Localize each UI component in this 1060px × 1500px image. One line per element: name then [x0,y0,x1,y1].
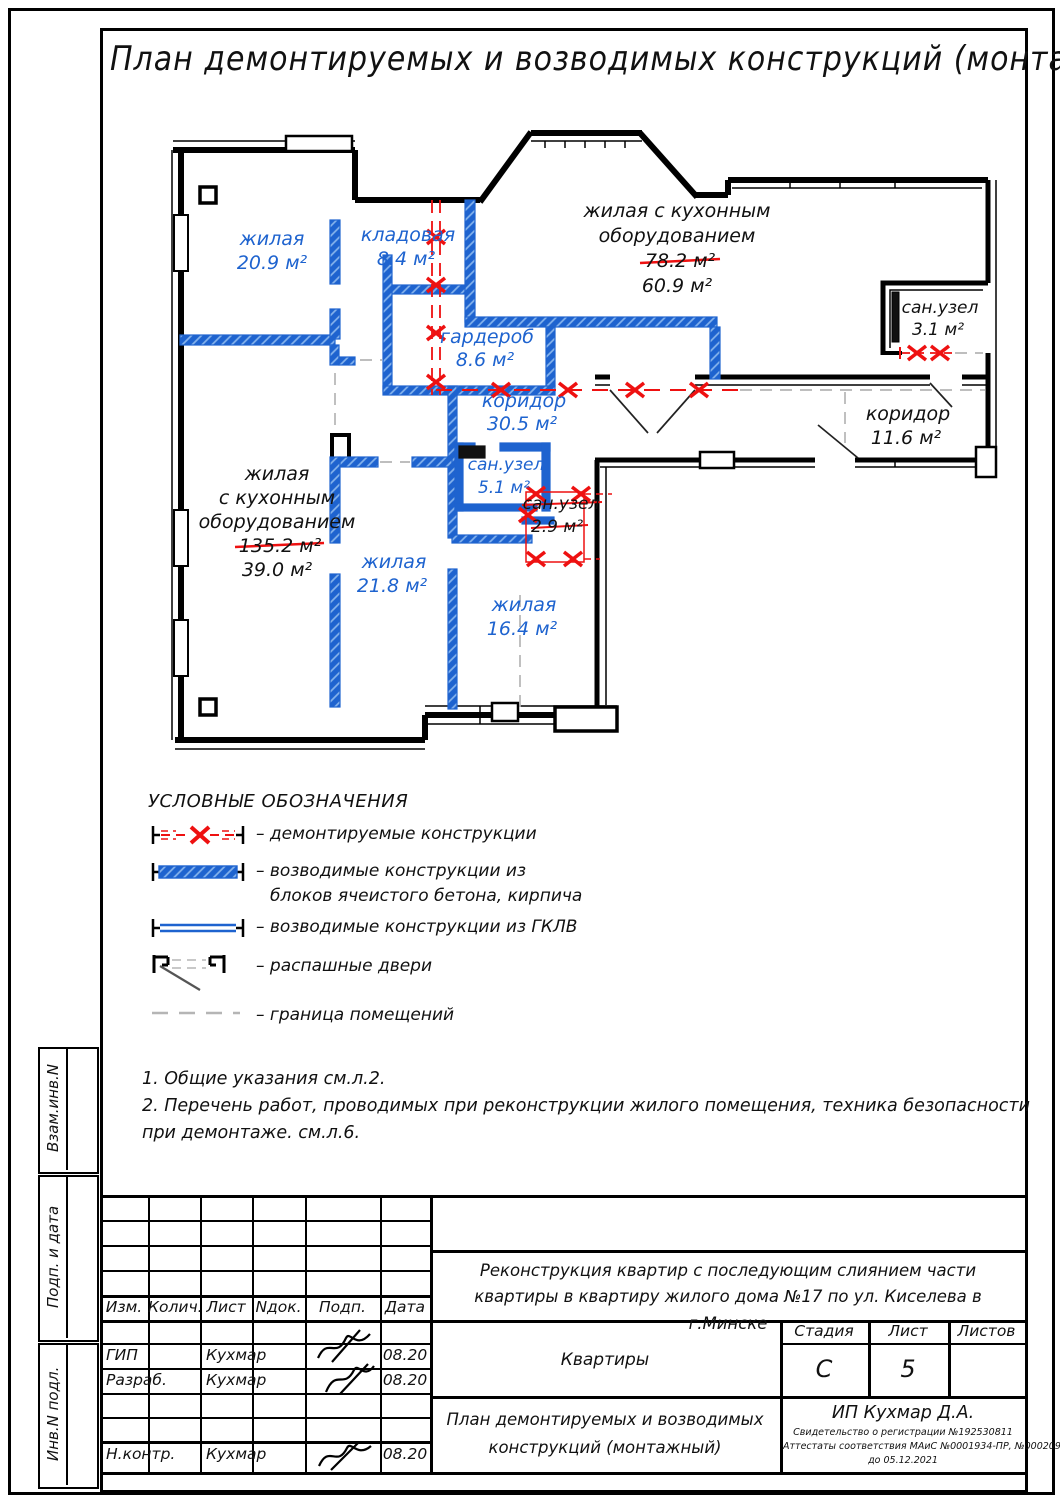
stage-label: Стадия [780,1322,868,1340]
legend-label-gklv: – возводимые конструкции из ГКЛВ [256,915,577,940]
col-podp: Подп. [305,1298,380,1316]
date-gip: 08.20 [380,1346,430,1364]
room-sanuzel-29-name: сан.узел [523,494,600,514]
sidebar-label-podp: Подп. и дата [40,1177,66,1336]
date-razrab: 08.20 [380,1371,430,1389]
legend-heading: УСЛОВНЫЕ ОБОЗНАЧЕНИЯ [148,791,648,812]
room-kitchen-top-new-area: 60.9 м² [642,275,713,297]
legend-item-boundary: – граница помещений [148,1003,648,1028]
role-nkontr: Н.контр. [106,1445,175,1463]
name-gip: Кухмар [206,1346,266,1364]
object-name: Квартиры [430,1350,780,1370]
room-kitchen-left-new-area: 39.0 м² [242,559,313,581]
floor-plan: жилая 20.9 м² кладовая 8.4 м² жилая с ку… [140,95,1025,785]
legend-label-blocks-2: блоков ячеистого бетона, кирпича [256,884,582,909]
legend-label-demolished: – демонтируемые конструкции [256,822,537,847]
date-nkontr: 08.20 [380,1445,430,1463]
swing-door-symbol [148,952,256,996]
erected-blocks-wall-symbol [148,859,256,889]
room-zhilaya-218-name: жилая [361,551,427,573]
drawing-sheet: План демонтируемых и возводимых конструк… [0,0,1060,1500]
room-koridor-116-area: 11.6 м² [871,427,942,449]
room-zhilaya-164-name: жилая [491,594,557,616]
room-sanuzel-31-area: 3.1 м² [912,320,964,340]
sidebar-label-inv: Инв.N подл. [40,1345,66,1483]
company-cert-3: до 05.12.2021 [783,1455,1023,1466]
sidebar-label-vzam: Взам.инв.N [40,1049,66,1168]
room-kitchen-left-l1: жилая [244,463,310,485]
sheets-label: Листов [948,1322,1025,1340]
room-koridor-305-area: 30.5 м² [487,413,558,435]
legend-item-demolished: – демонтируемые конструкции [148,822,648,852]
room-zhilaya-218-area: 21.8 м² [357,575,428,597]
name-razrab: Кухмар [206,1371,266,1389]
room-koridor-305-name: коридор [482,390,566,412]
room-kladovaya-area: 8.4 м² [377,248,436,270]
name-nkontr: Кухмар [206,1445,266,1463]
sheet-value: 5 [868,1355,948,1383]
room-kitchen-top-l1: жилая с кухонным [583,200,771,222]
sheet-title: План демонтируемых и возводимых конструк… [110,40,1015,79]
drawing-title-1: План демонтируемых и возводимых [430,1410,780,1429]
company-cert-1: Свидетельство о регистрации №192530811 [783,1427,1023,1438]
stage-value: С [780,1355,868,1383]
room-sanuzel-51-name: сан.узел [468,455,545,475]
company-cert-2: Аттестаты соответствия МАиС №0001934-ПР,… [783,1441,1023,1452]
general-notes: 1. Общие указания см.л.2. 2. Перечень ра… [142,1066,1052,1147]
demolished-wall-symbol [148,822,256,852]
room-kitchen-left-old-area: 135.2 м² [239,535,322,557]
room-labels: жилая 20.9 м² кладовая 8.4 м² жилая с ку… [199,200,979,640]
room-boundary-symbol [148,1003,256,1027]
col-kolich: Колич. [148,1298,200,1316]
legend: УСЛОВНЫЕ ОБОЗНАЧЕНИЯ – демонтируемые кон… [148,791,648,1035]
note-1: 1. Общие указания см.л.2. [142,1066,1052,1093]
legend-item-doors: – распашные двери [148,952,648,996]
role-gip: ГИП [106,1346,138,1364]
room-zhilaya-164-area: 16.4 м² [487,618,558,640]
room-sanuzel-31-name: сан.узел [902,298,979,318]
col-data: Дата [380,1298,430,1316]
signature-nkontr [315,1438,375,1472]
signature-gip [312,1328,378,1396]
room-zhilaya-209-name: жилая [239,228,305,250]
room-garderob-name: гардероб [440,326,534,348]
col-izm: Изм. [100,1298,148,1316]
legend-label-blocks-1: – возводимые конструкции из [256,859,582,884]
sheet-label: Лист [868,1322,948,1340]
room-kladovaya-name: кладовая [361,224,455,246]
note-2: 2. Перечень работ, проводимых при реконс… [142,1093,1052,1147]
room-garderob-area: 8.6 м² [456,349,515,371]
room-kitchen-left-l2: с кухонным [219,487,335,509]
new-walls-blue [180,200,720,709]
room-kitchen-top-old-area: 78.2 м² [645,250,716,272]
legend-label-doors: – распашные двери [256,952,432,979]
role-razrab: Разраб. [106,1371,167,1389]
col-ndok: Nдок. [252,1298,305,1316]
room-sanuzel-29-area: 2.9 м² [531,517,583,537]
col-list: Лист [200,1298,252,1316]
room-zhilaya-209-area: 20.9 м² [237,252,308,274]
legend-item-gklv: – возводимые конструкции из ГКЛВ [148,915,648,945]
drawing-title-2: конструкций (монтажный) [430,1438,780,1457]
room-koridor-116-name: коридор [866,403,950,425]
room-kitchen-left-l3: оборудованием [199,511,356,533]
room-kitchen-top-l2: оборудованием [599,225,756,247]
legend-label-boundary: – граница помещений [256,1003,454,1028]
legend-item-blocks: – возводимые конструкции из блоков ячеис… [148,859,648,908]
erected-gklv-wall-symbol [148,915,256,945]
company-name: ИП Кухмар Д.А. [783,1403,1023,1423]
